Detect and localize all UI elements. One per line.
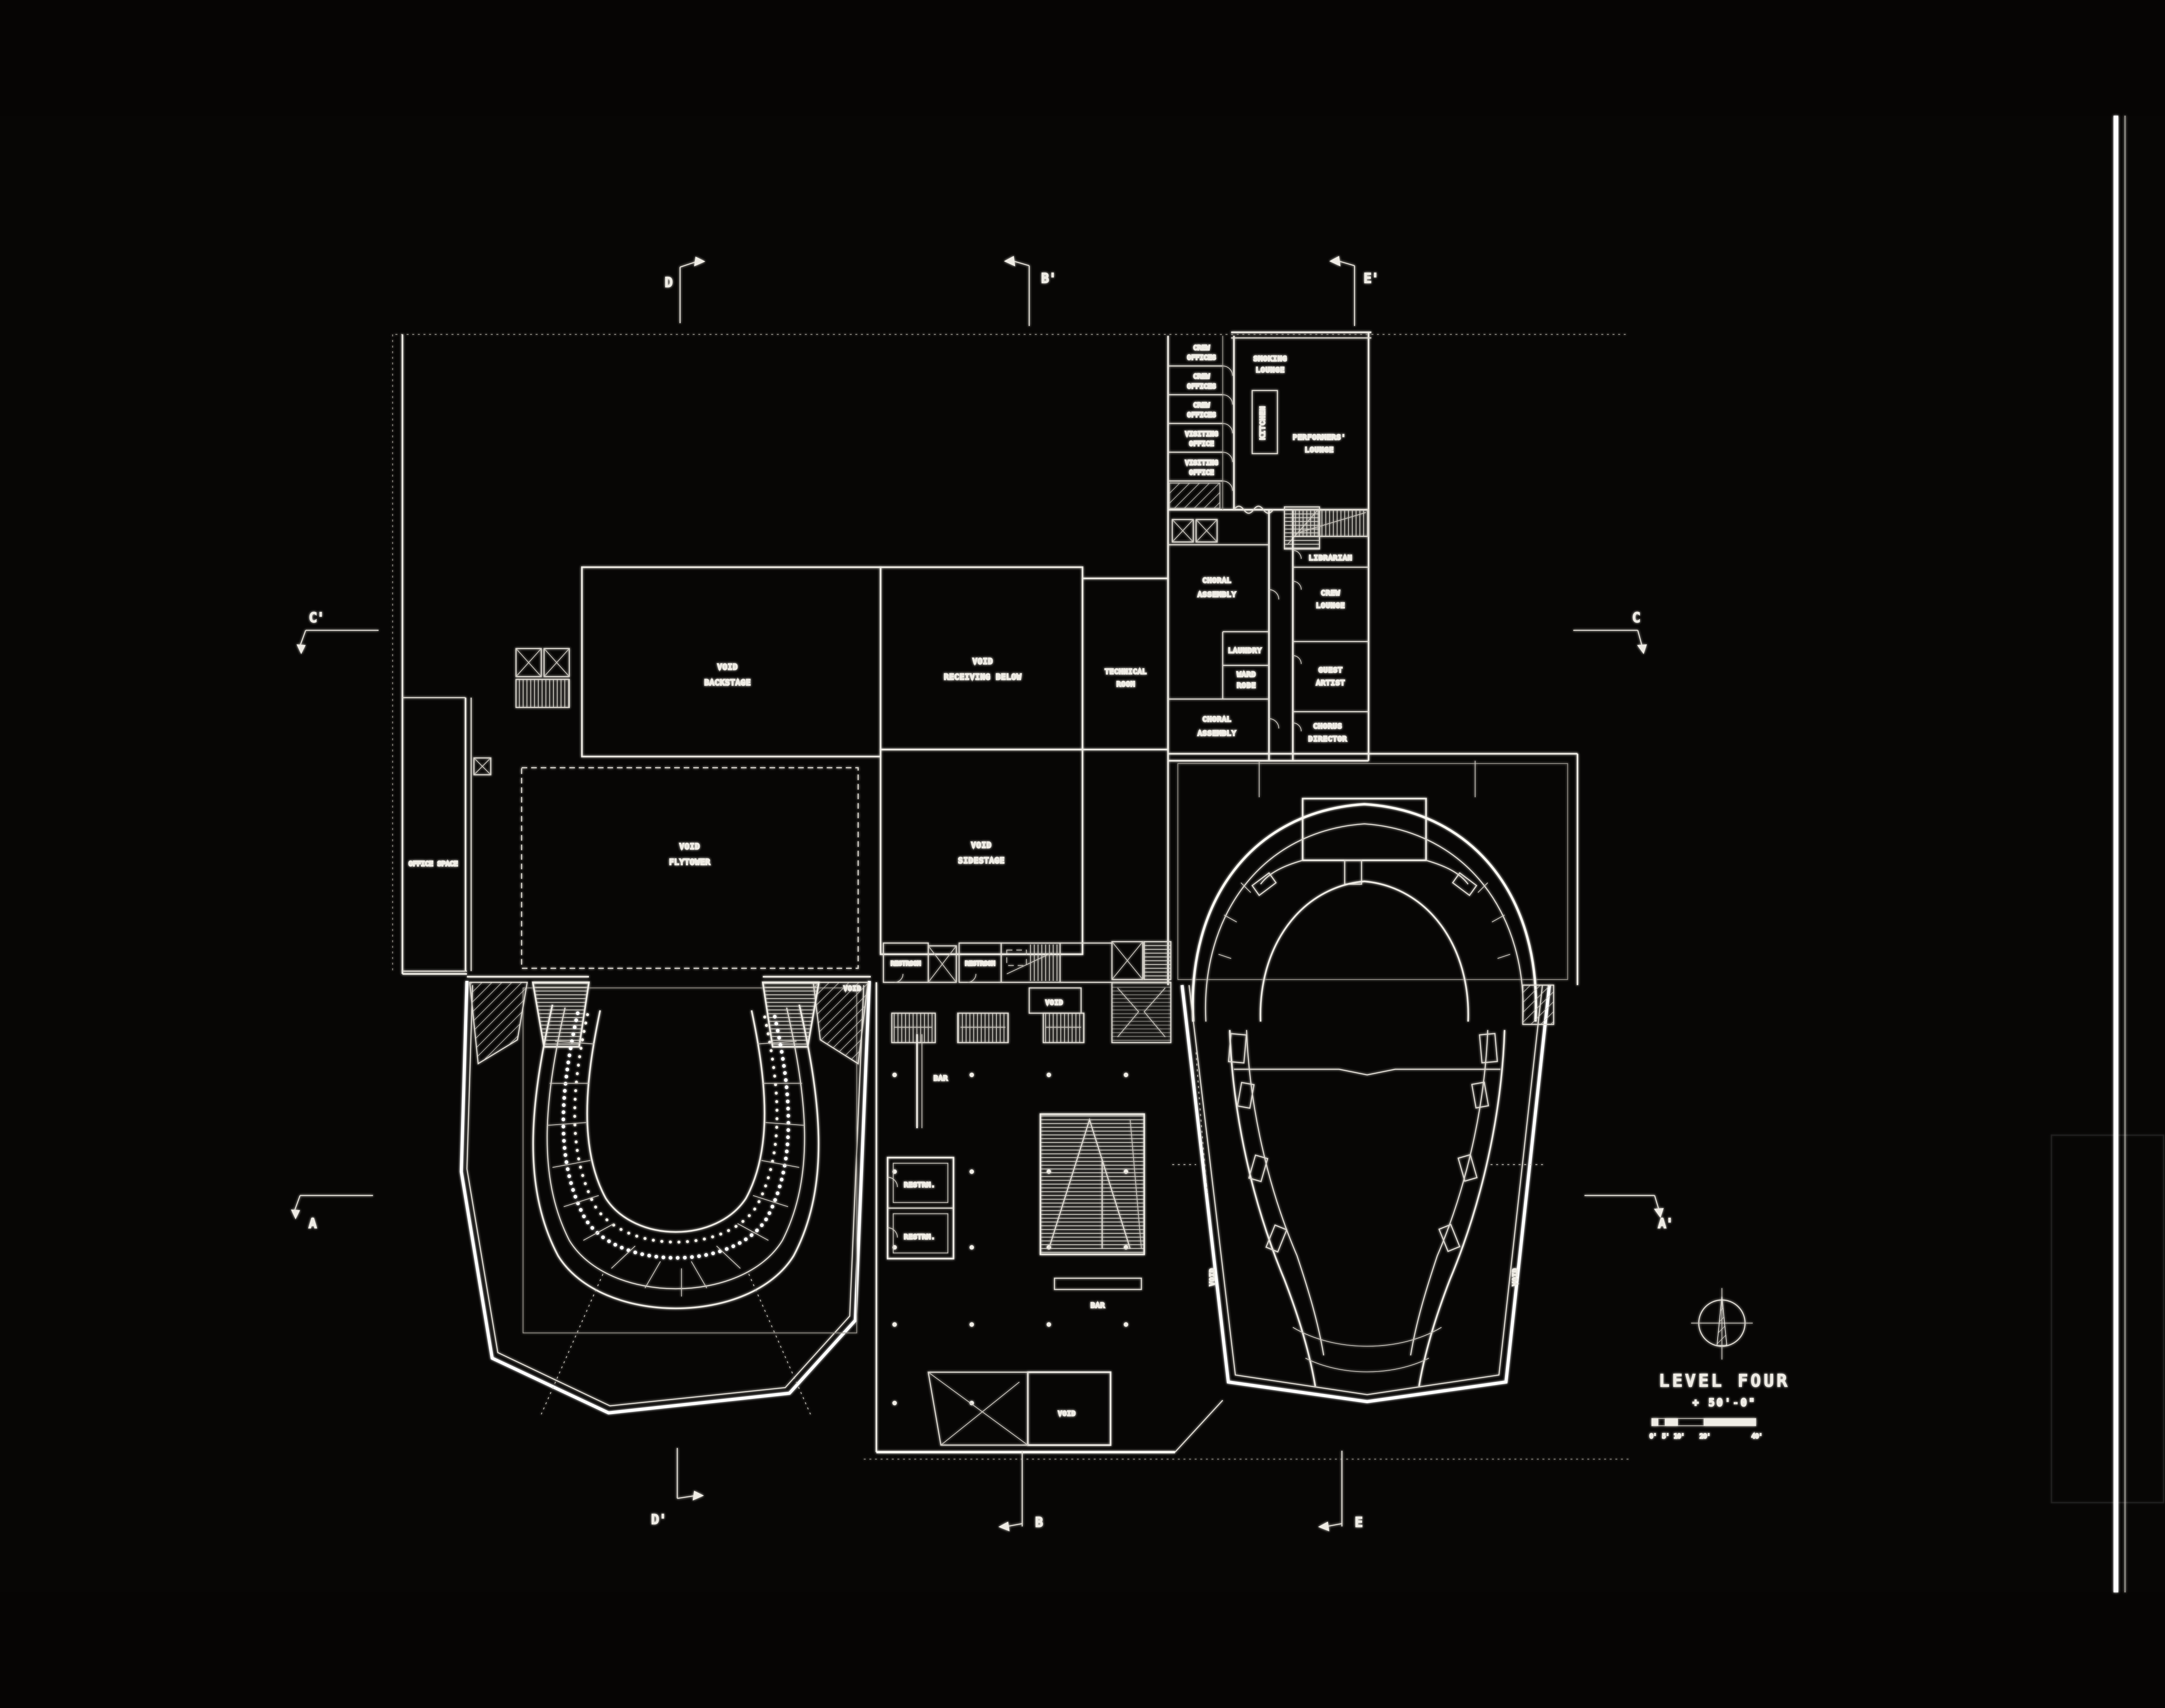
label-void-sidestage-b: SIDESTAGE <box>958 857 1005 865</box>
label-void-flytower-b: FLYTOWER <box>669 858 711 867</box>
section-marker-c-right: C <box>1632 610 1640 625</box>
label-void-flytower-a: VOID <box>679 843 700 851</box>
label-void-backstage-a: VOID <box>717 663 738 672</box>
label-restrm-2: RESTRM. <box>904 1233 936 1241</box>
label-technical-room-b: ROOM <box>1117 680 1135 688</box>
label-void-receiving-a: VOID <box>973 657 993 666</box>
floor-plan-drawing: LEVEL FOUR + 50'-0" CREWOFFICESCREWOFFIC… <box>0 0 2165 1708</box>
label-choral-assembly-1a: CHORAL <box>1202 576 1231 584</box>
label-void-backstage-b: BACKSTAGE <box>704 679 751 687</box>
label-guest-artist-b: ARTIST <box>1316 679 1345 687</box>
hall-stair-right <box>1523 985 1554 1025</box>
drawing-title: LEVEL FOUR <box>1659 1371 1790 1390</box>
label-technical-room-a: TECHNICAL <box>1105 668 1147 676</box>
label-void-receiving-b: RECEIVING BELOW <box>944 673 1022 682</box>
label-bar-upper: BAR <box>934 1074 948 1082</box>
section-marker-a-left: A <box>309 1216 317 1231</box>
label-laundry: LAUNDRY <box>1228 646 1262 654</box>
label-void-bottom: VOID <box>1058 1410 1076 1417</box>
label-chorus-director-b: DIRECTOR <box>1309 734 1347 743</box>
section-marker-e-bottom: E <box>1355 1515 1363 1530</box>
label-choral-assembly-2a: CHORAL <box>1202 715 1231 723</box>
label-smoking-lounge-b: LOUNGE <box>1256 366 1285 374</box>
label-void-theatre-edge: VOID <box>843 985 862 993</box>
label-void-hall-right: VOID <box>1511 1268 1519 1286</box>
label-crew-offices-1b: OFFICES <box>1187 353 1216 361</box>
label-performers-lounge-a: PERFORMERS' <box>1293 433 1346 441</box>
label-crew-offices-1a: CREW <box>1193 344 1210 352</box>
scale-tick-40: 40' <box>1751 1433 1762 1440</box>
label-smoking-lounge-a: SMOKING <box>1254 355 1287 363</box>
label-visiting-office-2a: VISITING <box>1185 459 1218 466</box>
label-performers-lounge-b: LOUNGE <box>1305 446 1334 454</box>
label-wardrobe-a: WARD <box>1237 670 1256 678</box>
label-choral-assembly-2b: ASSEMBLY <box>1198 729 1237 737</box>
label-restroom-1: RESTROOM <box>891 960 921 967</box>
label-choral-assembly-1b: ASSEMBLY <box>1198 590 1237 598</box>
section-marker-b-prime-top: B' <box>1041 271 1057 285</box>
label-kitchen: KITCHEN <box>1258 406 1267 440</box>
label-crew-lounge-b: LOUNGE <box>1316 602 1345 610</box>
section-marker-b-bottom: B <box>1035 1515 1043 1530</box>
label-chorus-director-a: CHORUS <box>1313 722 1342 730</box>
photographic-slide-background: LEVEL FOUR + 50'-0" CREWOFFICESCREWOFFIC… <box>0 0 2165 1708</box>
label-void-hall-left: VOID <box>1208 1268 1216 1286</box>
section-marker-c-prime-left: C' <box>309 610 324 625</box>
scale-bar <box>1652 1418 1756 1426</box>
label-crew-offices-2b: OFFICES <box>1187 382 1216 390</box>
grand-stair <box>1040 1114 1144 1255</box>
label-restroom-2: RESTROOM <box>965 960 995 967</box>
label-void-stairwell: VOID <box>1045 999 1063 1006</box>
label-crew-lounge-a: CREW <box>1321 589 1341 597</box>
label-crew-offices-2a: CREW <box>1193 372 1210 380</box>
label-librarian: LIBRARIAN <box>1309 554 1353 562</box>
label-crew-offices-3a: CREW <box>1193 401 1210 409</box>
section-marker-e-prime-top: E' <box>1364 271 1379 285</box>
label-visiting-office-2b: OFFICE <box>1189 469 1214 476</box>
scale-tick-5: 5' <box>1662 1433 1670 1440</box>
label-visiting-office-1b: OFFICE <box>1189 440 1214 448</box>
section-marker-a-prime-right: A' <box>1658 1216 1674 1231</box>
scale-tick-0: 0' <box>1650 1433 1657 1440</box>
drawing-elevation: + 50'-0" <box>1693 1397 1757 1408</box>
label-visiting-office-1a: VISITING <box>1185 430 1218 438</box>
label-restrm-1: RESTRM. <box>904 1181 936 1189</box>
section-marker-d-prime-bottom: D' <box>651 1512 666 1527</box>
label-void-sidestage-a: VOID <box>971 841 992 850</box>
section-marker-d-top: D <box>665 275 673 290</box>
label-wardrobe-b: ROBE <box>1237 681 1256 689</box>
scale-tick-10: 10' <box>1674 1433 1684 1440</box>
label-bar-lower: BAR <box>1091 1301 1105 1310</box>
label-guest-artist-a: GUEST <box>1318 666 1343 674</box>
label-office-space: OFFICE SPACE <box>409 860 458 868</box>
label-crew-offices-3b: OFFICES <box>1187 411 1216 419</box>
scale-tick-20: 20' <box>1700 1433 1710 1440</box>
